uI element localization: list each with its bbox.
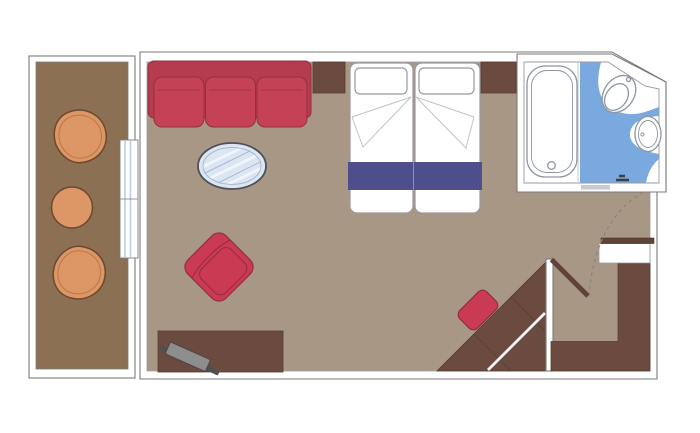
sink (635, 117, 661, 152)
entry-door-closed (601, 238, 654, 244)
balcony-table (52, 187, 93, 228)
nightstand-right (481, 62, 516, 93)
sofa-cushion (206, 77, 256, 127)
flush-button-icon (627, 78, 631, 82)
sliding-glass-door (120, 140, 138, 258)
sofa-cushion (257, 77, 307, 127)
double-bed (348, 63, 482, 213)
balcony-chair-top (54, 110, 106, 163)
sofa (148, 61, 311, 127)
drain-icon (548, 162, 556, 170)
bathroom-door-track (581, 185, 610, 190)
pillow-left (355, 68, 407, 94)
floor-plan (0, 0, 700, 433)
sofa-cushion (154, 77, 204, 127)
nightstand-left (313, 62, 345, 93)
entry-door-niche (599, 244, 650, 264)
bed-runner (348, 162, 482, 190)
pillow-right (419, 68, 474, 94)
balcony-chair-bottom (53, 246, 105, 299)
bathtub (527, 66, 577, 177)
